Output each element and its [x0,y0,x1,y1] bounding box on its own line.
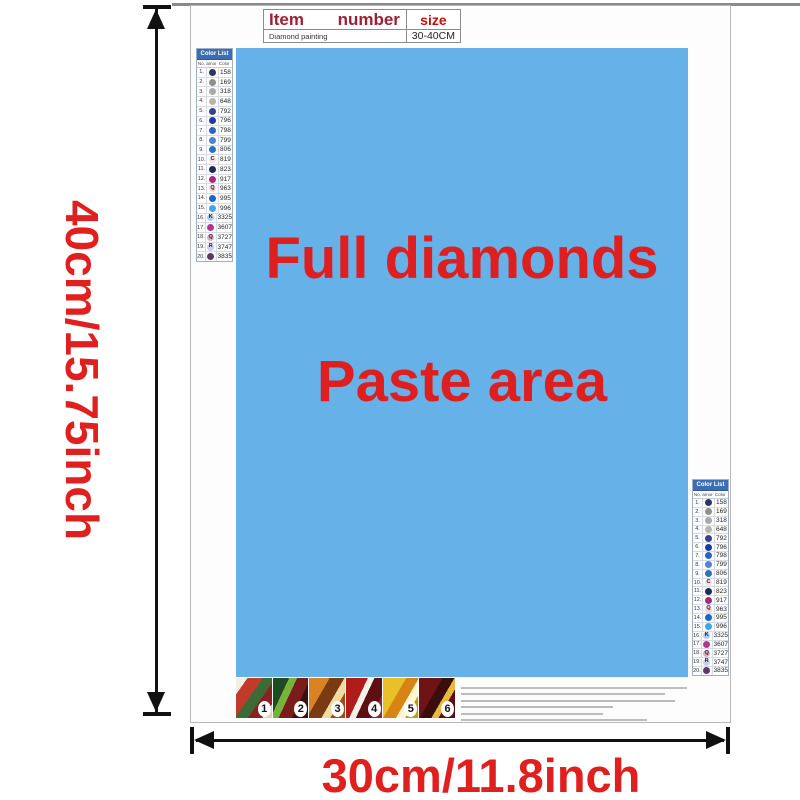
color-list-right: Color ListNo.DiamondColor1.1582.1693.318… [692,479,729,676]
step-number-badge: 6 [441,701,454,717]
color-row-number: 7. [197,126,207,135]
paste-area-label-1: Full diamonds [265,225,658,292]
diamond-color-icon [703,526,715,534]
dmc-color-code: 796 [219,117,232,124]
color-row-number: 17. [197,223,206,232]
color-row: 19.R3747 [197,243,232,253]
instruction-line [461,713,603,715]
color-row: 19.R3747 [693,658,728,667]
diamond-color-icon [703,508,715,516]
color-row: 5.792 [693,534,728,543]
color-row-number: 14. [197,194,207,203]
color-row: 17.3607 [693,641,728,650]
height-arrow-line [155,9,158,713]
height-arrow-bottom-cap [143,712,171,716]
dmc-color-code: 996 [715,623,728,630]
color-row: 13.Q963 [693,605,728,614]
diamond-color-icon: Q [702,649,713,657]
step-number-badge: 2 [294,701,307,717]
color-row: 20.3835 [197,252,232,261]
dmc-color-code: 318 [715,517,728,524]
dmc-color-code: 3747 [713,659,728,666]
header-number: number [332,10,406,30]
color-row-number: 6. [197,117,207,126]
step-number-badge: 3 [331,701,344,717]
color-row: 4.648 [197,97,232,107]
step-photo-1: 1 [236,678,273,718]
dmc-color-code: 648 [219,98,232,105]
size-value: 30-40CM [406,30,460,42]
color-list-title: Color List [197,49,232,60]
dmc-color-code: 158 [715,499,728,506]
diamond-color-icon [702,641,713,649]
dmc-color-code: 798 [715,552,728,559]
diamond-color-icon [703,543,715,551]
dmc-color-code: 806 [715,570,728,577]
color-list-column-label: Color [712,491,728,498]
diamond-color-icon [207,78,219,87]
color-row-number: 18. [693,649,702,657]
step-number-badge: 1 [258,701,271,717]
dmc-color-code: 917 [219,176,232,183]
step-number-badge: 5 [404,701,417,717]
color-row: 13.Q963 [197,184,232,194]
color-row-number: 13. [197,184,207,193]
color-row: 6.796 [197,117,232,127]
dmc-color-code: 3607 [217,224,232,231]
color-list-subheader: No.DiamondColor [693,491,728,499]
product-image: Item number size Diamond painting 30-40C… [0,0,800,800]
color-row-number: 4. [197,97,207,106]
dmc-color-code: 819 [715,579,728,586]
color-list-subheader: No.DiamondColor [197,60,232,68]
diamond-color-icon [703,552,715,560]
diamond-color-icon [703,499,715,507]
header-size: size [406,10,460,29]
color-row: 3.318 [197,87,232,97]
color-row-number: 16. [693,632,702,640]
color-row-number: 1. [197,68,207,77]
color-row-number: 15. [693,623,703,631]
diamond-color-icon: R [702,658,713,666]
color-list-column-label: No. [197,60,206,67]
color-row: 9.806 [693,570,728,579]
diamond-color-icon [207,107,219,116]
color-row-number: 10. [693,579,703,587]
dmc-color-code: 158 [219,69,232,76]
color-row-number: 13. [693,605,703,613]
color-row: 14.995 [197,194,232,204]
dmc-color-code: 819 [219,156,232,163]
color-row-number: 2. [693,508,703,516]
diamond-color-icon [703,517,715,525]
color-row-number: 16. [197,214,206,223]
item-value: Diamond painting [264,32,406,41]
color-row-number: 3. [197,87,207,96]
width-dimension-label: 30cm/11.8inch [322,748,641,800]
diamond-color-icon [703,623,715,631]
dmc-color-code: 792 [715,535,728,542]
color-row-number: 9. [693,570,703,578]
diamond-color-icon [207,204,219,213]
diamond-color-icon [207,87,219,96]
diamond-color-icon [703,614,715,622]
step-photo-6: 6 [419,678,456,718]
table-header-row: Item number size [264,10,460,30]
color-row-number: 15. [197,204,207,213]
color-row: 10.C819 [197,155,232,165]
color-row: 18.Q3727 [197,233,232,243]
dmc-color-code: 648 [715,526,728,533]
diamond-color-icon [703,587,715,595]
step-photo-4: 4 [346,678,383,718]
height-arrow-down-head [147,692,165,712]
color-row: 6.796 [693,543,728,552]
dmc-color-code: 996 [219,205,232,212]
dmc-color-code: 917 [715,597,728,604]
table-value-row: Diamond painting 30-40CM [264,30,460,42]
color-row: 3.318 [693,517,728,526]
paste-area-label-2: Paste area [317,348,607,415]
color-row: 20.3835 [693,667,728,675]
color-row: 12.917 [693,596,728,605]
dmc-color-code: 963 [219,185,232,192]
instruction-steps-strip: 123456 [236,678,456,718]
diamond-color-icon [207,146,219,155]
color-row: 12.917 [197,175,232,185]
color-row: 4.648 [693,526,728,535]
diamond-color-icon [207,194,219,203]
dmc-color-code: 796 [715,544,728,551]
color-row: 8.799 [693,561,728,570]
color-row: 14.995 [693,614,728,623]
color-row-number: 12. [693,596,703,604]
diamond-color-icon: R [206,243,217,252]
diamond-color-icon [702,667,713,675]
color-row: 10.C819 [693,579,728,588]
color-row: 2.169 [197,78,232,88]
diamond-color-icon: Q [206,233,217,242]
color-row-number: 19. [693,658,702,666]
diamond-color-icon: C [703,579,715,587]
diamond-color-icon: Q [207,184,219,193]
diamond-color-icon: K [702,632,713,640]
diamond-color-icon [207,136,219,145]
dmc-color-code: 806 [219,146,232,153]
instruction-line [461,693,665,695]
color-row-number: 8. [197,136,207,145]
height-arrow-up-head [147,9,165,29]
color-row-number: 5. [197,107,207,116]
color-row: 11.823 [197,165,232,175]
color-row: 7.798 [197,126,232,136]
color-row: 1.158 [197,68,232,78]
color-row-number: 1. [693,499,703,507]
diamond-color-icon [206,252,217,261]
dmc-color-code: 3747 [217,244,232,251]
dmc-color-code: 3835 [713,667,728,674]
instruction-line [461,719,647,721]
color-row-number: 3. [693,517,703,525]
color-list-column-label: Diamond [702,491,713,498]
height-dimension-label: 40cm/15.75inch [55,200,109,540]
dmc-color-code: 799 [219,137,232,144]
color-list-column-label: Color [216,60,232,67]
dmc-color-code: 995 [219,195,232,202]
color-row: 7.798 [693,552,728,561]
dmc-color-code: 798 [219,127,232,134]
diamond-color-icon [207,68,219,77]
dmc-color-code: 3727 [217,234,232,241]
dmc-color-code: 3835 [217,253,232,260]
color-row-number: 6. [693,543,703,551]
color-row-number: 4. [693,526,703,534]
dmc-color-code: 823 [219,166,232,173]
color-row: 15.996 [197,204,232,214]
step-photo-3: 3 [309,678,346,718]
color-row: 2.169 [693,508,728,517]
diamond-color-icon [703,561,715,569]
dmc-color-code: 3325 [713,632,728,639]
dmc-color-code: 318 [219,88,232,95]
instruction-line [461,700,675,702]
color-row-number: 12. [197,175,207,184]
color-row-number: 7. [693,552,703,560]
color-row-number: 9. [197,146,207,155]
paste-area: Full diamonds Paste area [236,48,688,677]
diamond-color-icon [207,165,219,174]
instructions-text-block [461,687,687,721]
width-arrow-right-head [706,731,726,749]
dmc-color-code: 823 [715,588,728,595]
color-row: 5.792 [197,107,232,117]
diamond-color-icon [207,117,219,126]
diamond-color-icon [207,126,219,135]
color-row-number: 11. [693,587,703,595]
color-list-column-label: Diamond [206,60,217,67]
color-row: 16.K3325 [693,632,728,641]
width-arrow-line [196,739,724,742]
diamond-color-icon [703,570,715,578]
color-row-number: 20. [693,667,702,675]
step-photo-2: 2 [273,678,310,718]
dmc-color-code: 169 [715,508,728,515]
color-row-number: 5. [693,534,703,542]
color-row-number: 11. [197,165,207,174]
color-list-column-label: No. [693,491,702,498]
diamond-color-icon: C [207,155,219,164]
dmc-color-code: 963 [715,606,728,613]
color-row: 11.823 [693,587,728,596]
instruction-line [461,706,613,708]
item-size-table: Item number size Diamond painting 30-40C… [263,9,461,43]
dmc-color-code: 3727 [713,650,728,657]
dmc-color-code: 792 [219,108,232,115]
step-number-badge: 4 [368,701,381,717]
color-list-left: Color ListNo.DiamondColor1.1582.1693.318… [196,48,233,262]
diamond-color-icon [703,596,715,604]
diamond-color-icon: K [206,214,217,223]
color-row: 17.3607 [197,223,232,233]
color-row-number: 14. [693,614,703,622]
header-item: Item [264,10,332,30]
dmc-color-code: 169 [219,79,232,86]
diamond-color-icon [703,534,715,542]
color-row-number: 20. [197,252,206,261]
dmc-color-code: 3325 [217,214,232,221]
dmc-color-code: 3607 [713,641,728,648]
diamond-color-icon [206,223,217,232]
color-list-title: Color List [693,480,728,491]
dmc-color-code: 995 [715,614,728,621]
color-row: 9.806 [197,146,232,156]
diamond-color-icon [207,97,219,106]
dmc-color-code: 799 [715,561,728,568]
diamond-color-icon [207,175,219,184]
color-row-number: 19. [197,243,206,252]
color-row-number: 8. [693,561,703,569]
color-row-number: 2. [197,78,207,87]
width-arrow-right-cap [726,727,730,754]
diamond-color-icon: Q [703,605,715,613]
color-row-number: 17. [693,641,702,649]
color-row: 8.799 [197,136,232,146]
color-row: 1.158 [693,499,728,508]
width-arrow-left-head [194,731,214,749]
color-row: 16.K3325 [197,214,232,224]
step-photo-5: 5 [383,678,420,718]
color-row-number: 10. [197,155,207,164]
color-row: 18.Q3727 [693,649,728,658]
instruction-line [461,687,687,689]
color-row-number: 18. [197,233,206,242]
color-row: 15.996 [693,623,728,632]
